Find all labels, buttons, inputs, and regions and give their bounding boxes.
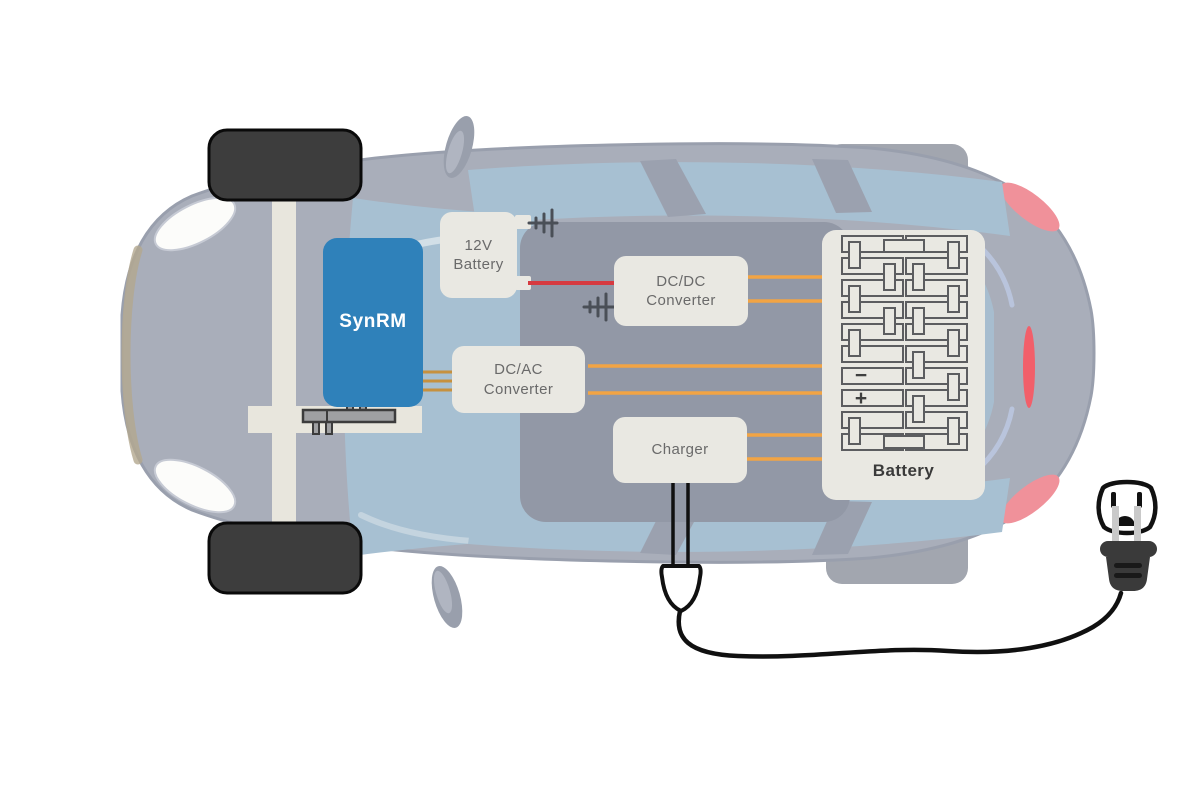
aux-battery-label-line2: Battery <box>453 255 503 275</box>
dc-dc-label-line2: Converter <box>646 291 715 311</box>
battery-positive-terminal-label: + <box>855 387 867 410</box>
traction-battery-label: Battery <box>822 461 985 481</box>
dc-ac-label-line2: Converter <box>484 380 553 400</box>
motor-label: SynRM <box>339 310 406 335</box>
dc-ac-label-line1: DC/AC <box>494 360 543 380</box>
dc-dc-label-line1: DC/DC <box>656 272 706 292</box>
charging-connector-icon <box>661 566 700 611</box>
aux-battery-node: 12V Battery <box>440 212 517 298</box>
aux-battery-label-line1: 12V <box>465 236 493 256</box>
charging-cord <box>679 593 1121 656</box>
dc-ac-converter-node: DC/AC Converter <box>452 346 585 413</box>
charger-node: Charger <box>613 417 747 483</box>
car-illustration: − + <box>0 0 1200 800</box>
charger-label: Charger <box>652 440 709 460</box>
ev-powertrain-diagram: − + <box>0 0 1200 800</box>
motor-node: SynRM <box>323 238 423 407</box>
outlet-icon <box>1099 482 1156 533</box>
battery-negative-terminal-label: − <box>855 364 867 387</box>
dc-dc-converter-node: DC/DC Converter <box>614 256 748 326</box>
